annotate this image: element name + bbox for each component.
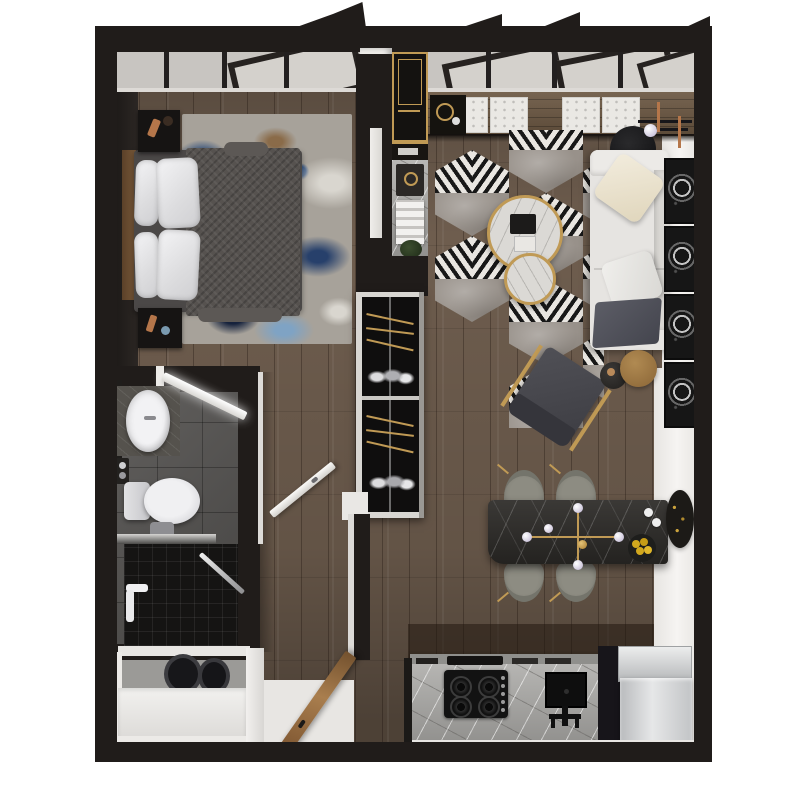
refrigerator-top	[618, 646, 692, 682]
refrigerator-front	[620, 678, 692, 744]
hanging-clothes	[364, 364, 416, 390]
cabinet-label-plate	[398, 148, 418, 155]
exterior-wall-west	[95, 26, 117, 762]
laundry-door-frame	[246, 648, 264, 748]
blanket-fold	[224, 142, 268, 156]
bench-cushion	[562, 97, 600, 133]
tray-decor	[436, 103, 454, 121]
counter-slot	[545, 658, 571, 664]
counter-slot	[512, 658, 538, 664]
shower-tray	[124, 544, 238, 646]
burner	[478, 696, 500, 718]
fruit-bowl	[628, 534, 656, 562]
cabinet-shelf	[398, 110, 420, 112]
wardrobe-shelf	[362, 396, 419, 400]
burner	[450, 676, 472, 698]
cabinet-shelf	[398, 59, 422, 105]
chandelier-globe	[573, 560, 583, 570]
open-window-sash-protrusion	[294, 2, 366, 28]
appliance-stack	[396, 200, 424, 244]
espresso-cup	[652, 518, 661, 527]
toiletries	[116, 458, 129, 484]
tray-decor	[452, 117, 460, 125]
oval-wall-art	[666, 490, 694, 548]
downdraft-vent	[447, 656, 503, 665]
bed-pillow	[155, 229, 201, 301]
side-table-wood	[620, 350, 657, 387]
wardrobe-frame	[356, 292, 362, 518]
exterior-wall-south	[95, 742, 712, 762]
shower-bar	[126, 590, 134, 622]
blanket-fold	[198, 308, 282, 322]
chandelier-globe	[544, 524, 553, 533]
floor-lamp-arm	[638, 120, 692, 123]
floor-lamp-rod	[657, 102, 660, 132]
hall-wall	[354, 514, 370, 660]
nightstand-bottom	[138, 308, 182, 348]
counter-back-edge	[410, 654, 608, 664]
bed-blanket	[186, 148, 300, 316]
vessel-sink	[126, 390, 170, 452]
exterior-wall-east	[694, 26, 712, 762]
open-window-sash-protrusion	[540, 12, 580, 28]
chandelier-globe	[573, 503, 583, 513]
side-table-decor	[607, 368, 615, 376]
kitchen-faucet-leg	[575, 719, 579, 728]
bench-cushion	[490, 97, 528, 133]
kitchen-faucet-leg	[551, 719, 555, 728]
gold-framed-bar-cabinet	[392, 52, 428, 142]
espresso-cup	[644, 508, 653, 517]
mirror-sliding-door	[370, 128, 382, 238]
niche-wall	[392, 256, 428, 296]
bed-pillow	[155, 157, 201, 229]
sink-faucet	[144, 416, 156, 420]
counter-end-panel	[404, 658, 412, 744]
floor-lamp-bulb	[644, 124, 657, 137]
chandelier-arm	[577, 508, 579, 566]
chandelier-globe	[614, 532, 624, 542]
book-stack	[510, 214, 536, 234]
nightstand-decor	[161, 326, 170, 335]
nightstand-top	[138, 110, 180, 152]
nightstand-decor	[163, 116, 173, 126]
chandelier-gold-ball	[578, 540, 587, 549]
book-stack	[514, 236, 536, 252]
toilet-bowl	[144, 478, 200, 524]
burner	[450, 696, 472, 718]
entry-door-handle	[298, 719, 306, 729]
gas-cooktop	[444, 670, 508, 718]
bathroom-east-wall-face	[258, 372, 263, 544]
chandelier-globe	[522, 532, 532, 542]
sofa-throw-dark	[592, 298, 662, 348]
hanging-clothes	[364, 470, 416, 496]
laundry-cabinet-front	[118, 688, 246, 740]
glass-partition	[114, 534, 216, 544]
cabinet-lower-section	[392, 142, 428, 160]
kitchen-sink	[545, 672, 587, 708]
wardrobe	[356, 292, 424, 518]
door-handle	[311, 476, 319, 484]
counter-slot	[416, 658, 438, 664]
floor-lamp-rod	[678, 116, 681, 148]
wardrobe-frame	[419, 292, 424, 518]
coffee-table-small	[504, 253, 556, 305]
floor-plan-render	[0, 0, 800, 800]
coffee-machine	[396, 164, 424, 196]
burner	[478, 676, 500, 698]
serving-tray	[430, 95, 466, 135]
chandelier-arm	[528, 536, 620, 538]
